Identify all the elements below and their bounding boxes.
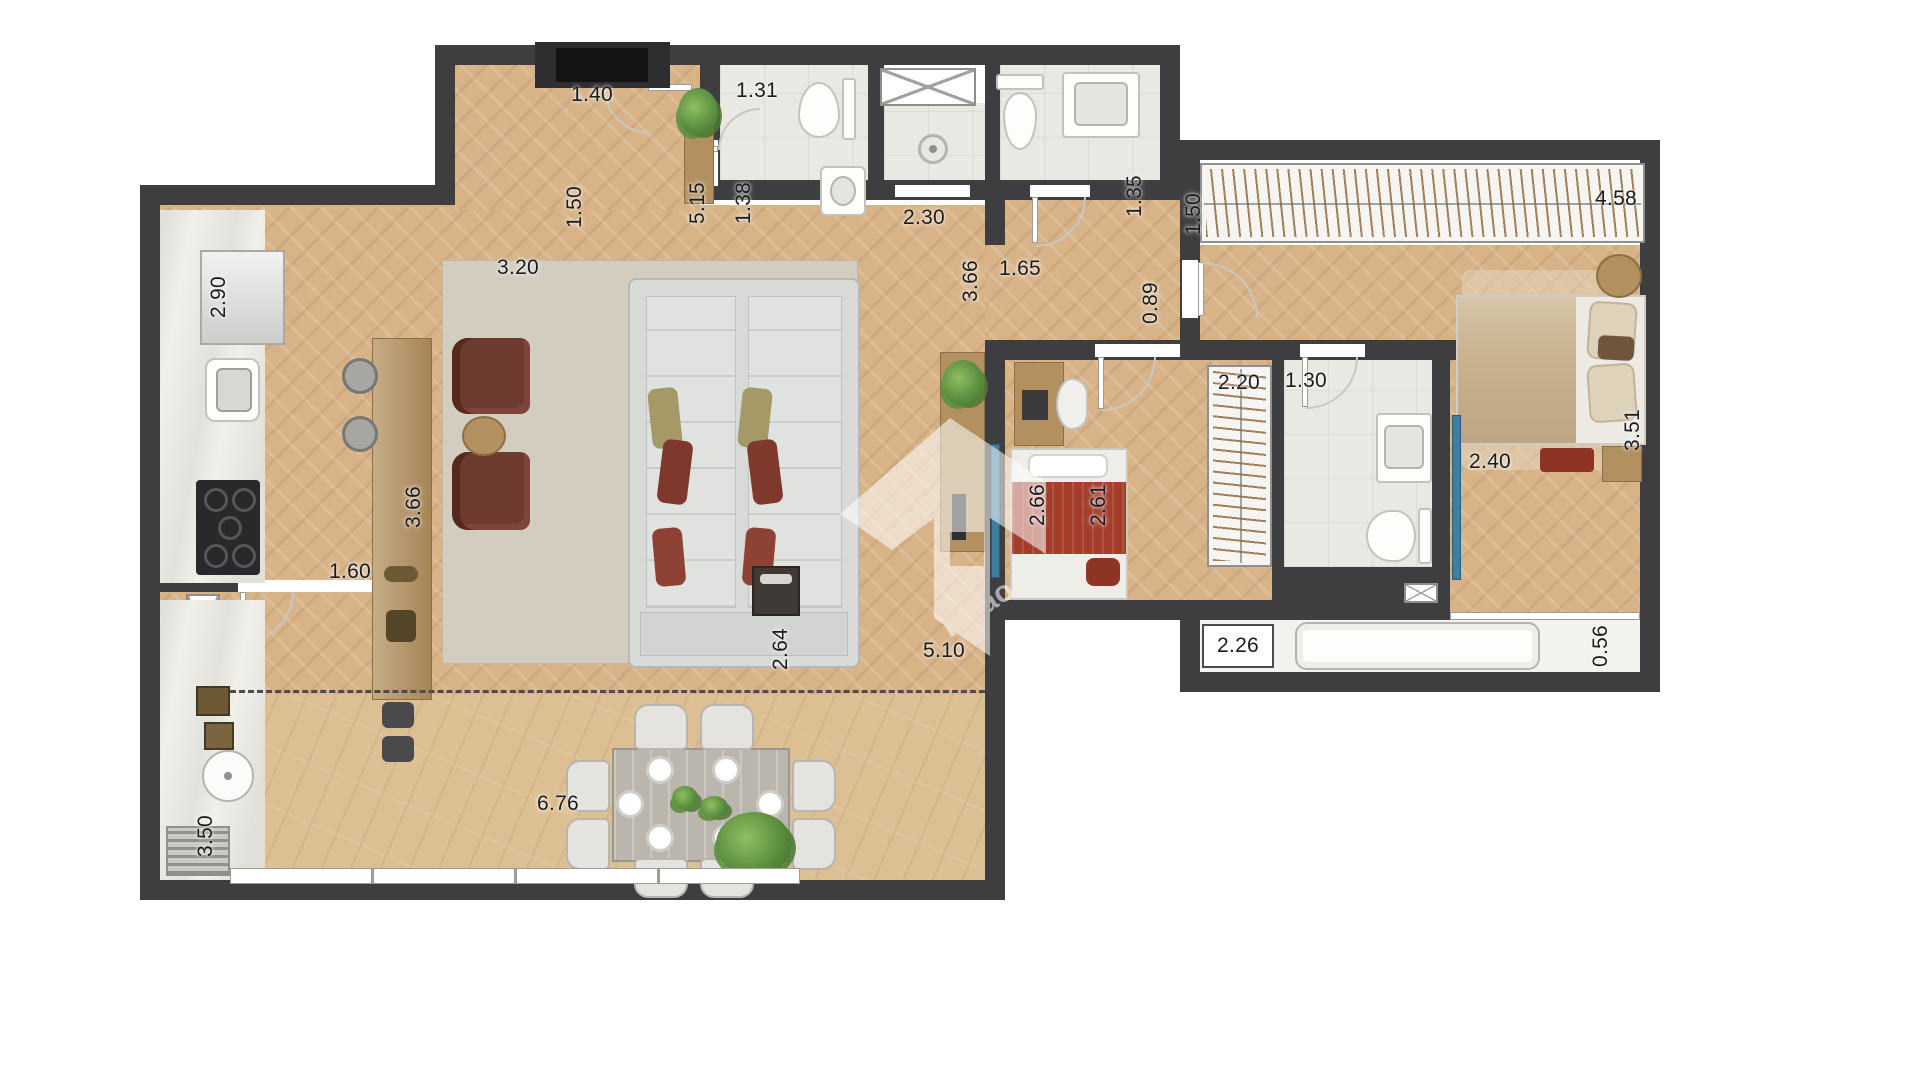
sink-basin [830,176,856,206]
wall-living-right-stub [985,195,1005,245]
dimension-label: 2.61 [1087,484,1111,526]
cooktop-burner [232,488,256,512]
opening-shower-door [895,185,970,197]
tv-living [952,494,966,540]
floor-plan: razão 1.401.505.153.202.901.311.382.301.… [0,0,1920,1080]
dimension-label: 5.10 [923,639,965,663]
master-nightstand [1602,446,1642,482]
wall-bedrooms-top [985,340,1460,360]
dimension-label: 3.20 [497,256,539,280]
terrace-plant [716,812,792,876]
armchair [452,338,530,414]
bedroom2-wardrobe [1207,365,1272,567]
dimension-label: 2.26 [1217,634,1259,658]
wardrobe-hangers [1206,169,1639,237]
nightstand-round [1596,254,1642,298]
entry-doormat [556,48,648,82]
sofa-pillow-red [652,527,687,587]
bathtub [1295,622,1540,670]
dining-chair [792,760,836,812]
bar-stool [342,358,378,394]
dimension-label: 0.89 [1139,282,1163,324]
dimension-label: 2.90 [207,276,231,318]
dimension-label: 1.40 [571,83,613,107]
dimension-label: 3.51 [1621,409,1645,451]
wall-master-left [1180,140,1200,360]
bar-stool-dark [382,736,414,762]
wall-top-left-wing [140,185,455,205]
dining-chair [634,704,688,750]
shower-window [880,68,976,106]
dimension-label: 1.50 [1182,193,1206,235]
master-tv [1452,415,1461,580]
island-bowl [386,610,416,642]
bedroom2-laptop [1022,390,1048,420]
table-centerpiece [672,786,698,810]
cooktop-burner [218,516,242,540]
dimension-label: 5.15 [686,182,710,224]
toilet-tank [996,74,1044,90]
tv-bedroom2 [991,444,1000,578]
wall-bedroom2-bottom [985,600,1292,620]
opening-bedroom2-door [1095,344,1180,357]
wall-left-outer [140,185,160,900]
dimension-label: 0.56 [1589,625,1613,667]
bathroom3-window [1404,583,1438,603]
wall-bathrooms-right [1160,45,1180,200]
opening-bathroom3-door [1300,344,1365,357]
bar-stool-dark [382,702,414,728]
wall-balcony-left [1180,600,1200,692]
table-centerpiece [700,796,728,818]
terrace-glass-doors [230,868,800,884]
dimension-label: 3.66 [402,486,426,528]
master-wardrobe [1200,163,1645,243]
dimension-label: 1.65 [999,257,1041,281]
master-blanket [1458,297,1576,443]
desk-chair [1056,378,1088,430]
bedroom2-pillow [1028,454,1108,478]
place-setting [712,756,740,784]
armchair [452,452,530,530]
bar-stool [342,416,378,452]
side-table-round [462,416,506,456]
cooktop-burner [204,488,228,512]
dimension-label: 3.50 [194,815,218,857]
bedroom2-pouf-red [1086,558,1120,586]
terrace-boundary-dashed [230,690,985,693]
dimension-label: 2.66 [1026,484,1050,526]
dimension-label: 2.30 [903,206,945,230]
sideboard-plant [942,360,984,406]
opening-bathroom2-door [1030,185,1090,197]
vanity-sink [1384,425,1424,469]
wardrobe-hangers [1213,371,1266,561]
dining-chair [566,818,610,870]
toilet-tank [1418,508,1432,564]
service-fixture [204,722,234,750]
dimension-label: 1.60 [329,560,371,584]
place-setting [616,790,644,818]
toilet-tank [842,78,856,140]
toilet [1366,510,1416,562]
dimension-label: 2.20 [1218,371,1260,395]
dining-chair [700,704,754,750]
opening-master-door [1182,260,1198,318]
dimension-label: 2.64 [769,628,793,670]
dimension-label: 1.38 [732,182,756,224]
kitchen-sink-basin [216,368,252,412]
wall-master-top [1160,140,1660,160]
master-bench-red [1540,448,1594,472]
cooktop-burner [204,544,228,568]
wall-balcony-bottom [1180,672,1660,692]
sofa-bottom-seat [640,612,848,656]
wall-bedroom2-bathroom3-divider [1272,360,1284,567]
service-fixture [196,686,230,716]
dimension-label: 1.35 [1123,175,1147,217]
dimension-label: 3.66 [959,260,983,302]
dimension-label: 1.30 [1285,369,1327,393]
dimension-label: 1.50 [563,186,587,228]
laundry-sink-drain [224,772,232,780]
island-bowl [384,566,418,582]
dimension-label: 1.31 [736,79,778,103]
dimension-label: 4.58 [1595,187,1637,211]
vanity-sink [1074,82,1128,126]
place-setting [646,756,674,784]
dimension-label: 6.76 [537,792,579,816]
wall-bathroom3-master-divider [1432,355,1450,620]
entry-plant [678,88,718,136]
master-pillow-accent [1597,335,1634,361]
terrace-cabinet-items [760,574,792,584]
dimension-label: 2.40 [1469,450,1511,474]
master-balcony-glass [1450,612,1640,620]
cooktop-burner [232,544,256,568]
wall-entry-step [435,45,455,205]
shower-head-center [929,145,937,153]
place-setting [646,824,674,852]
wall-living-right [985,340,1005,900]
dining-chair [792,818,836,870]
